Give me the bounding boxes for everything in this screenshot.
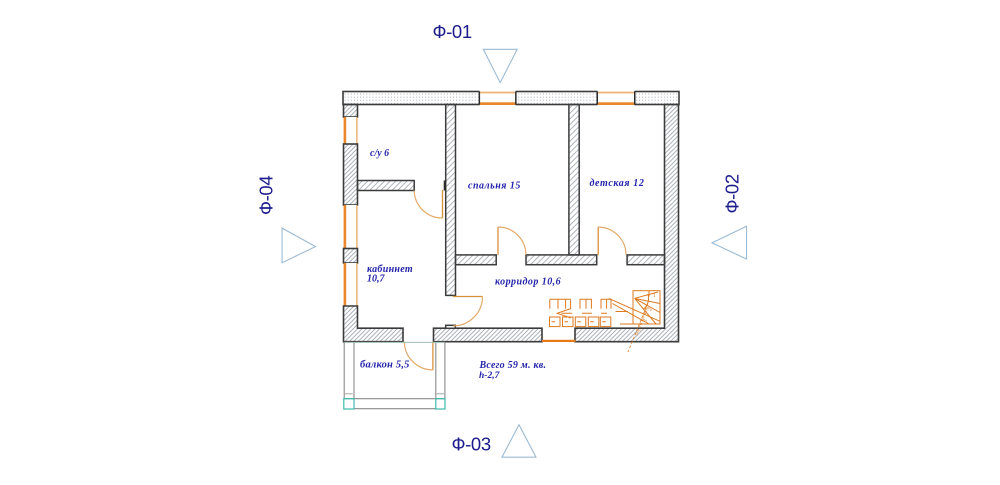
svg-text:Всего 59 м. кв.: Всего 59 м. кв. bbox=[479, 360, 547, 371]
svg-text:Ф-03: Ф-03 bbox=[452, 434, 491, 455]
svg-text:корридор 10,6: корридор 10,6 bbox=[495, 277, 561, 288]
svg-text:балкон 5,5: балкон 5,5 bbox=[360, 360, 410, 371]
svg-text:1: 1 bbox=[653, 293, 656, 299]
svg-text:Ф-02: Ф-02 bbox=[722, 174, 743, 213]
svg-text:Ф-04: Ф-04 bbox=[256, 176, 277, 215]
svg-text:спальня 15: спальня 15 bbox=[468, 181, 521, 192]
svg-text:с/у 6: с/у 6 bbox=[370, 148, 389, 159]
svg-text:h-2,7: h-2,7 bbox=[479, 371, 501, 381]
svg-text:Ф-01: Ф-01 bbox=[433, 21, 472, 42]
svg-text:10,7: 10,7 bbox=[367, 274, 386, 285]
svg-text:детская 12: детская 12 bbox=[590, 178, 645, 189]
